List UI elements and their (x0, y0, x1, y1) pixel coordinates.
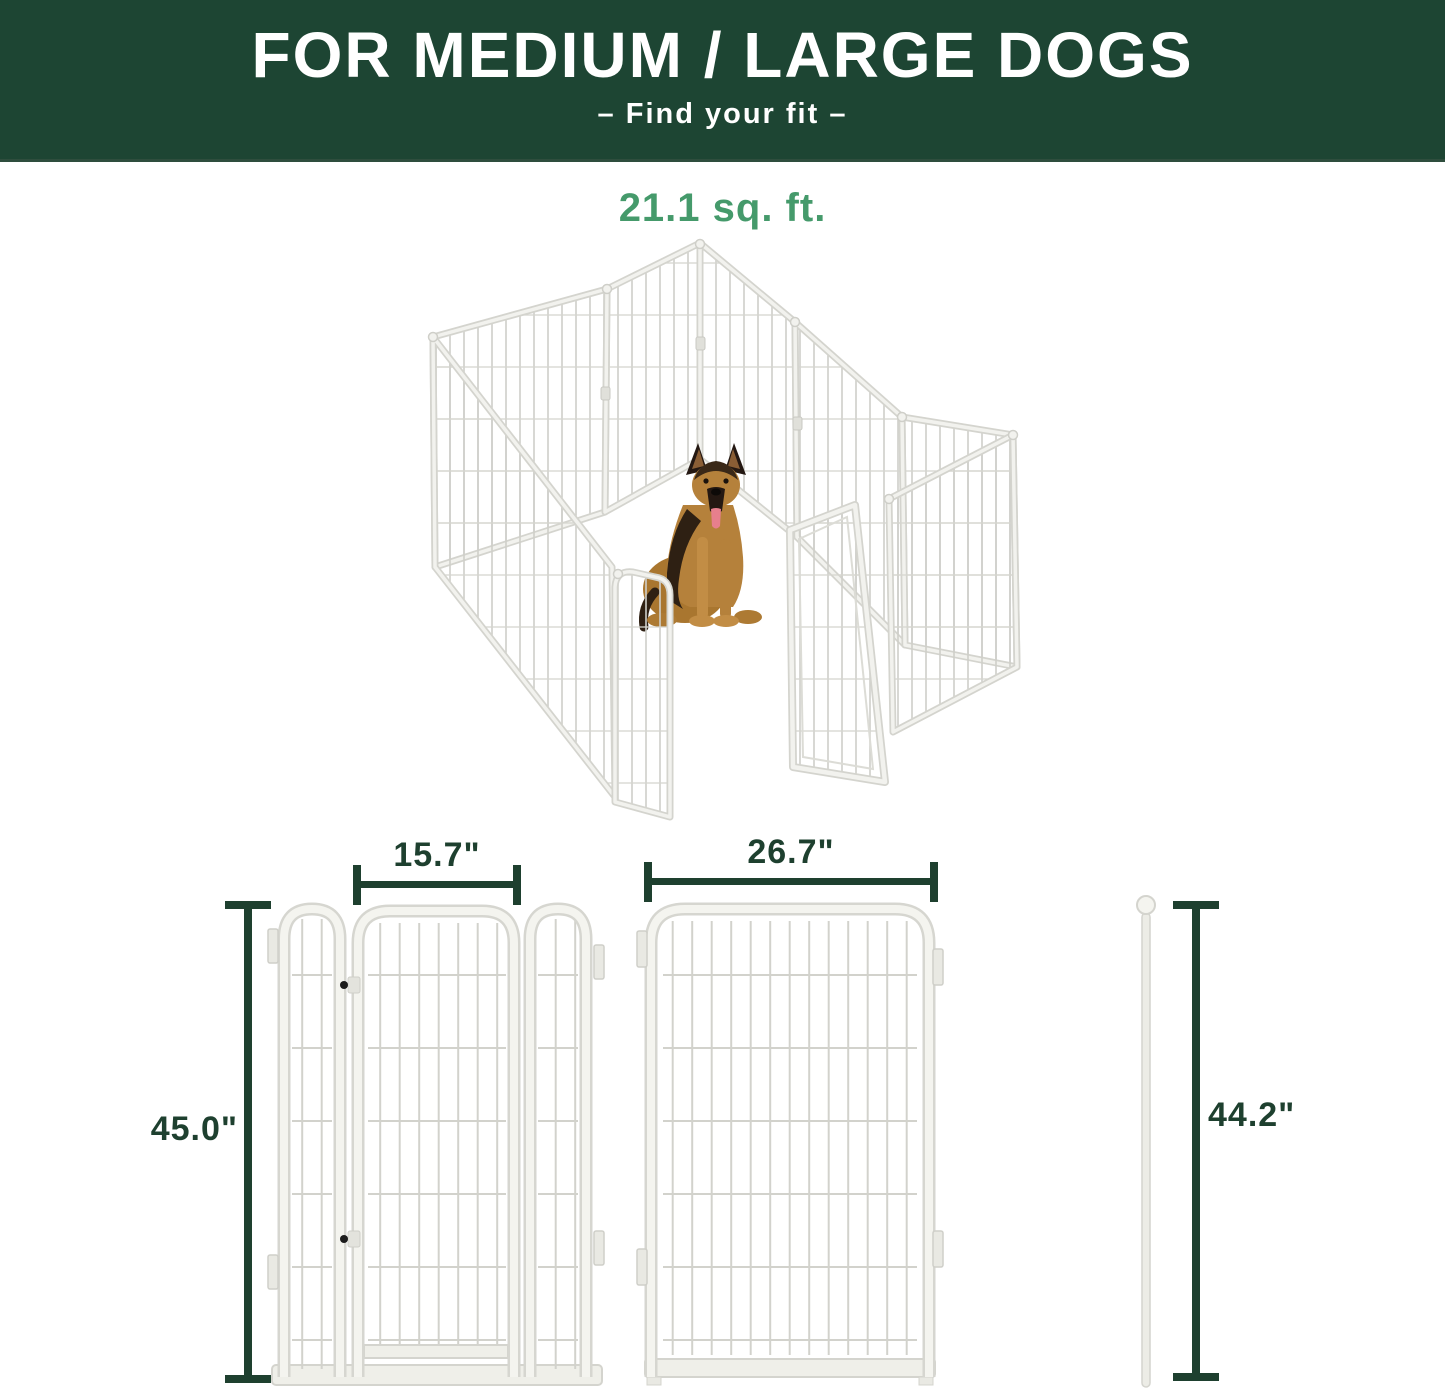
regular-panel-diagram (637, 909, 943, 1385)
page-title: FOR MEDIUM / LARGE DOGS (0, 0, 1445, 89)
connector-rod-diagram (1137, 896, 1155, 1387)
gate-height-label: 45.0" (88, 1110, 238, 1149)
rod-height-label: 44.2" (1208, 1096, 1368, 1135)
area-size-label: 21.1 sq. ft. (0, 186, 1445, 231)
rod-height-measure-line (1173, 901, 1219, 1381)
gate-width-label: 15.7" (337, 836, 537, 875)
header-banner: FOR MEDIUM / LARGE DOGS – Find your fit … (0, 0, 1445, 162)
playpen-illustration (415, 237, 1035, 827)
product-infographic: FOR MEDIUM / LARGE DOGS – Find your fit … (0, 0, 1445, 1391)
page-subtitle: – Find your fit – (0, 98, 1445, 131)
panel-width-label: 26.7" (691, 833, 891, 872)
gate-panel-diagram (268, 909, 604, 1385)
